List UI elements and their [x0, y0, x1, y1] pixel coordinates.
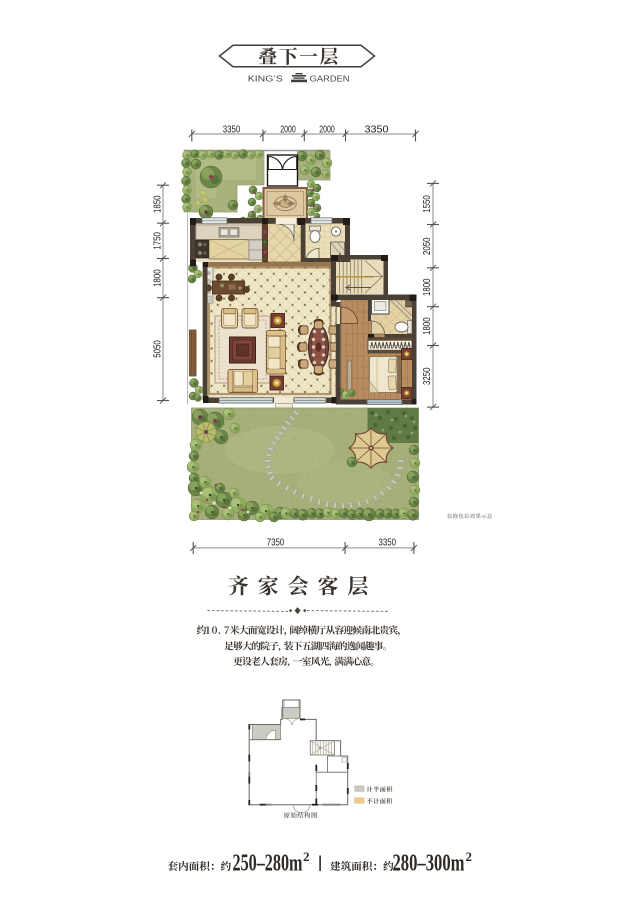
svg-text:3350: 3350	[379, 537, 397, 548]
svg-text:1550: 1550	[422, 195, 433, 213]
svg-text:280–300m: 280–300m	[393, 851, 465, 877]
svg-text:2: 2	[303, 849, 310, 864]
svg-text:5050: 5050	[153, 340, 164, 358]
svg-text:250–280m: 250–280m	[233, 851, 303, 877]
svg-text:1800: 1800	[153, 269, 164, 287]
svg-text:1800: 1800	[422, 278, 433, 296]
svg-text:2000: 2000	[319, 124, 335, 135]
svg-text:GARDEN: GARDEN	[310, 75, 350, 84]
svg-text:2000: 2000	[280, 124, 296, 135]
svg-text:7350: 7350	[267, 537, 285, 548]
svg-text:1850: 1850	[153, 195, 164, 213]
svg-text:KING’S: KING’S	[248, 75, 283, 84]
svg-text:1800: 1800	[422, 317, 433, 335]
svg-text:2050: 2050	[422, 237, 433, 255]
svg-text:1750: 1750	[153, 232, 164, 250]
svg-text:2: 2	[466, 849, 473, 864]
svg-text:3350: 3350	[223, 124, 241, 135]
svg-text:3350: 3350	[365, 124, 389, 135]
svg-text:3250: 3250	[422, 367, 433, 385]
